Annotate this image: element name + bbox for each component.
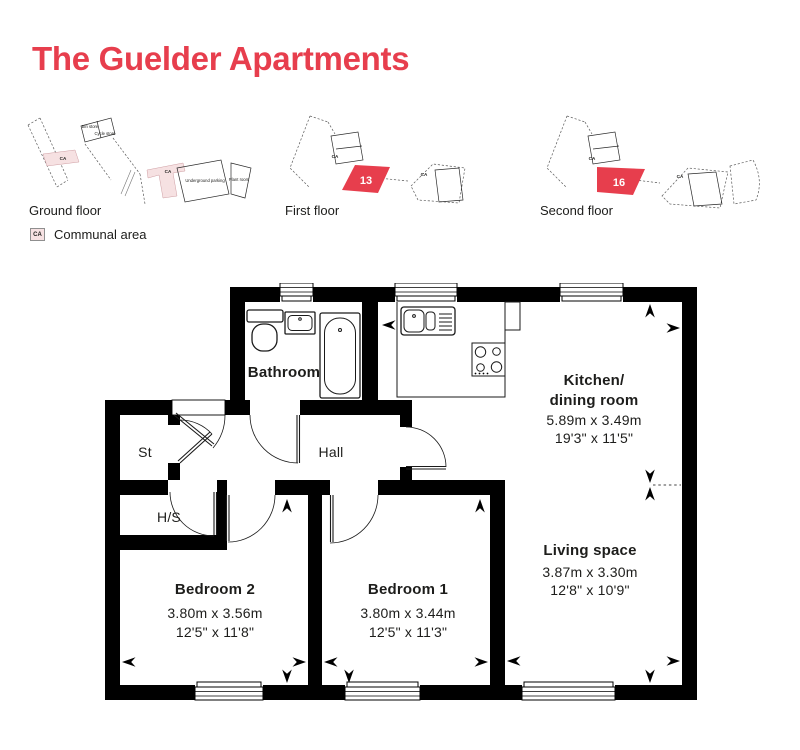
- second-floor-site-outline: [547, 116, 759, 208]
- room-label-bedroom2: Bedroom 2 3.80m x 3.56m 12'5" x 11'8": [167, 581, 262, 640]
- floorplan-page: The Guelder Apartments Bin store Cycle s…: [0, 0, 800, 750]
- svg-text:12'8" x 10'9": 12'8" x 10'9": [550, 582, 629, 598]
- first-floor-label: First floor: [285, 203, 340, 218]
- second-floor-label: Second floor: [540, 203, 614, 218]
- communal-area-tag: CA: [60, 156, 67, 161]
- kitchen-fixtures: [397, 302, 520, 397]
- communal-area-tag: CA: [677, 174, 684, 179]
- unit-16-number: 16: [613, 177, 625, 189]
- svg-text:5.89m x 3.49m: 5.89m x 3.49m: [546, 412, 641, 428]
- svg-text:Living space: Living space: [543, 542, 636, 559]
- main-floorplan: Bathroom St H/S Hall Kitchen/ dining roo…: [100, 283, 700, 703]
- hob-icon: [472, 343, 505, 376]
- window: [560, 283, 623, 301]
- svg-text:12'5" x 11'8": 12'5" x 11'8": [176, 624, 254, 640]
- bedroom1-door: [330, 495, 378, 543]
- svg-text:3.80m x 3.44m: 3.80m x 3.44m: [360, 605, 455, 621]
- room-label-st: St: [138, 444, 152, 460]
- toilet-icon: [247, 310, 283, 351]
- svg-text:3.80m x 3.56m: 3.80m x 3.56m: [167, 605, 262, 621]
- unit-13-number: 13: [360, 175, 372, 187]
- svg-text:dining room: dining room: [550, 392, 639, 409]
- underground-parking-label: Underground parking: [185, 178, 225, 183]
- room-label-living: Living space 3.87m x 3.30m 12'8" x 10'9": [542, 542, 637, 598]
- bathtub-icon: [320, 313, 360, 398]
- ramp-annotation-lines: [121, 170, 135, 196]
- kitchen-sink-icon: [401, 307, 455, 335]
- communal-area-tag: CA: [421, 172, 428, 177]
- cycle-store-label: Cycle store: [95, 131, 117, 136]
- communal-area-tag: CA: [332, 154, 339, 159]
- svg-text:Kitchen/: Kitchen/: [564, 372, 625, 389]
- communal-area-key: CA: [30, 228, 45, 241]
- communal-area-tag: CA: [165, 169, 172, 174]
- bathroom-door: [250, 415, 300, 463]
- window: [195, 682, 263, 700]
- plant-room-label: Plant room: [229, 177, 250, 182]
- svg-text:3.87m x 3.30m: 3.87m x 3.30m: [542, 564, 637, 580]
- first-floor-minimap: 13 CA CA First floor: [283, 108, 500, 223]
- room-label-bathroom: Bathroom: [248, 364, 320, 381]
- bedroom2-door: [227, 495, 276, 542]
- ground-floor-minimap: Bin store Cycle store CA CA Underground …: [25, 108, 255, 223]
- ground-floor-label: Ground floor: [29, 203, 102, 218]
- window: [345, 682, 420, 700]
- window: [395, 283, 457, 301]
- room-label-hall: Hall: [319, 444, 344, 460]
- svg-text:Bedroom 1: Bedroom 1: [368, 581, 448, 598]
- window: [280, 283, 313, 301]
- kitchen-door: [406, 427, 446, 469]
- communal-area-tag: CA: [589, 156, 596, 161]
- basin-icon: [285, 312, 315, 334]
- room-label-kitchen: Kitchen/ dining room 5.89m x 3.49m 19'3"…: [546, 372, 641, 446]
- bin-store-label: Bin store: [82, 124, 99, 129]
- window: [522, 682, 615, 700]
- ground-floor-site-outline: [28, 118, 251, 204]
- kitchen-unit: [505, 302, 520, 330]
- second-floor-minimap: 16 CA CA Second floor: [538, 108, 773, 223]
- svg-text:Bedroom 2: Bedroom 2: [175, 581, 255, 598]
- page-title: The Guelder Apartments: [32, 40, 409, 78]
- legend: CA Communal area: [30, 227, 147, 242]
- bathroom-fixtures: [247, 310, 360, 398]
- room-label-bedroom1: Bedroom 1 3.80m x 3.44m 12'5" x 11'3": [360, 581, 455, 640]
- svg-text:19'3" x 11'5": 19'3" x 11'5": [555, 430, 633, 446]
- legend-label: Communal area: [54, 227, 147, 242]
- svg-text:12'5" x 11'3": 12'5" x 11'3": [369, 624, 447, 640]
- room-label-hs: H/S: [157, 509, 181, 525]
